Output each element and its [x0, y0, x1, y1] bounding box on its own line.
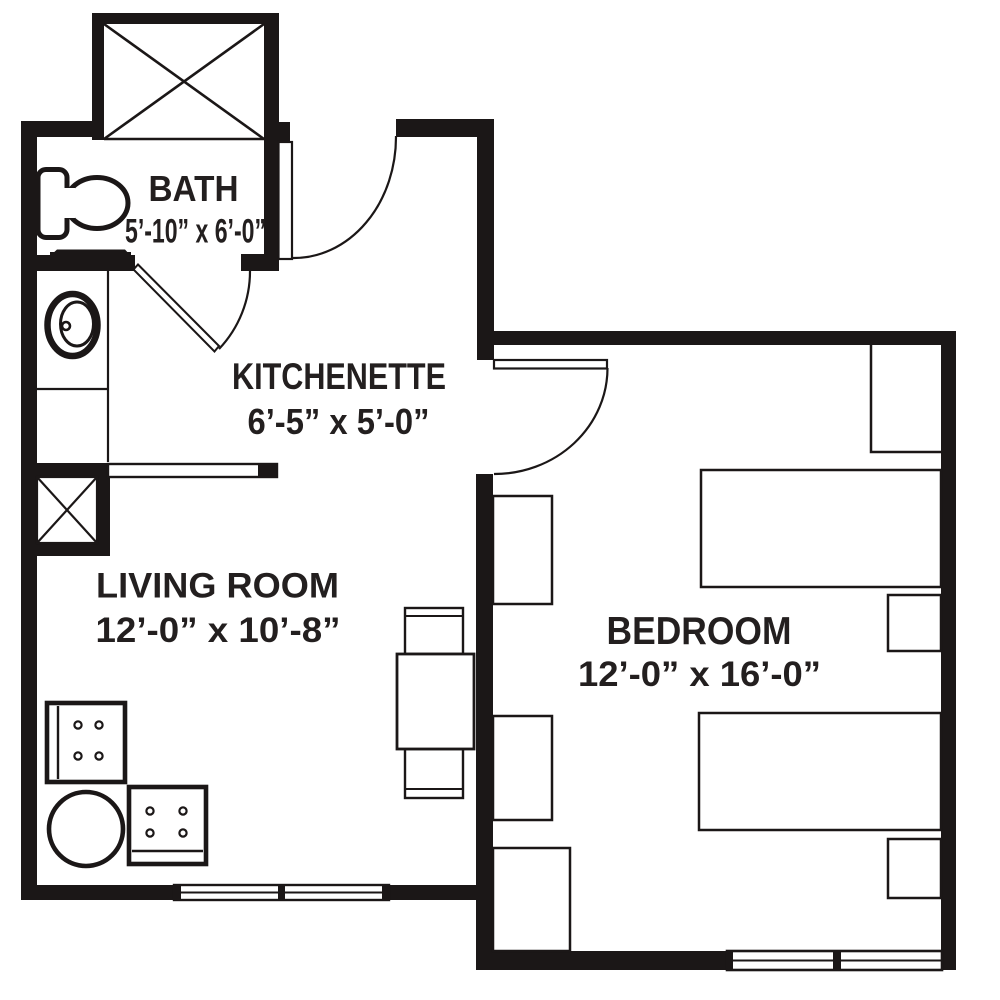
svg-text:12’-0” x 16’-0”: 12’-0” x 16’-0” [578, 655, 821, 694]
svg-text:LIVING ROOM: LIVING ROOM [96, 567, 339, 606]
svg-text:6’-5” x 5’-0”: 6’-5” x 5’-0” [248, 401, 430, 442]
svg-text:BATH: BATH [149, 168, 239, 209]
svg-text:BEDROOM: BEDROOM [607, 610, 792, 653]
svg-text:KITCHENETTE: KITCHENETTE [232, 356, 446, 397]
svg-text:5’-10” x 6’-0”: 5’-10” x 6’-0” [125, 213, 266, 251]
svg-text:12’-0” x 10’-8”: 12’-0” x 10’-8” [96, 611, 341, 650]
